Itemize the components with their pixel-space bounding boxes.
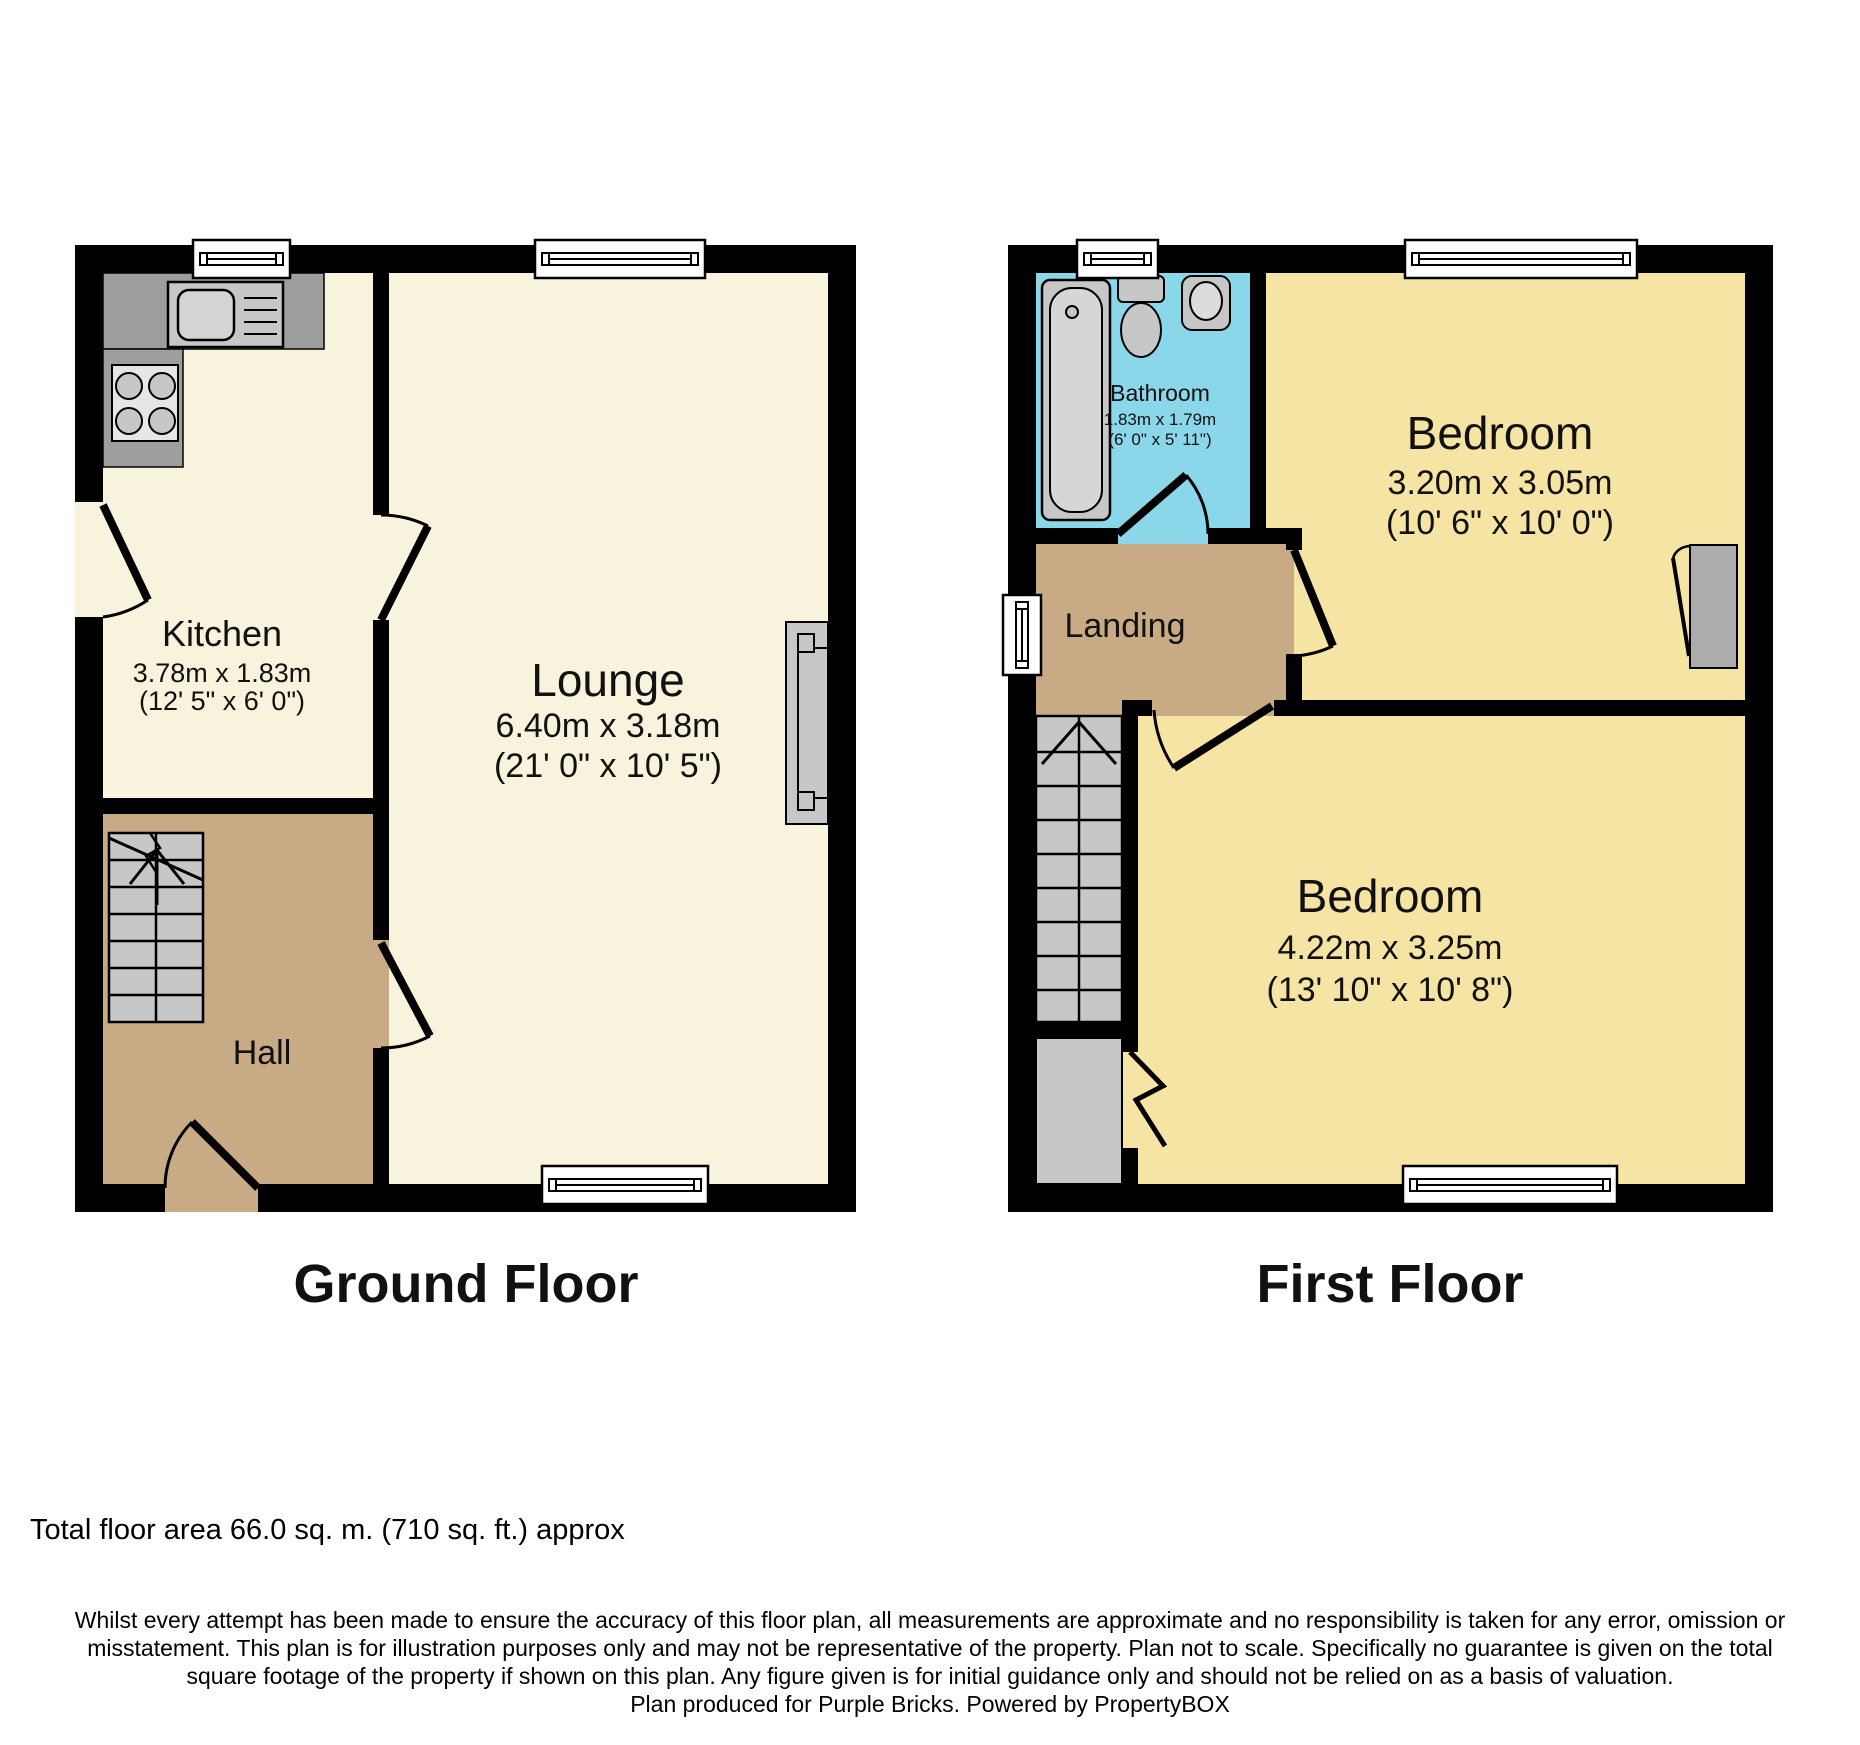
kitchen-sink-icon	[168, 282, 283, 347]
cupboard-over-stairs	[1036, 1038, 1122, 1184]
bedroom-front-dims-metric: 3.20m x 3.05m	[1388, 464, 1613, 502]
floorplan-drawing: Kitchen 3.78m x 1.83m (12' 5" x 6' 0") L…	[0, 0, 1860, 1745]
bathroom-label: Bathroom	[1110, 380, 1210, 406]
lounge-dims-imperial: (21' 0" x 10' 5")	[494, 747, 722, 785]
bedroom-front-dims-imperial: (10' 6" x 10' 0")	[1386, 504, 1614, 542]
lounge-window-back	[542, 1166, 708, 1204]
first-floor-plan: Bathroom 1.83m x 1.79m (6' 0" x 5' 11") …	[1003, 240, 1773, 1314]
front-door-threshold	[165, 1184, 258, 1212]
bedroom-back-label: Bedroom	[1297, 870, 1484, 922]
disclaimer-line: square footage of the property if shown …	[0, 1662, 1860, 1690]
ground-floor-title: Ground Floor	[294, 1254, 639, 1314]
kitchen-dims-imperial: (12' 5" x 6' 0")	[139, 686, 305, 716]
disclaimer-line: Whilst every attempt has been made to en…	[0, 1606, 1860, 1634]
bathtub-icon	[1042, 280, 1110, 520]
floorplan-page: Kitchen 3.78m x 1.83m (12' 5" x 6' 0") L…	[0, 0, 1860, 1745]
disclaimer-line: Plan produced for Purple Bricks. Powered…	[0, 1690, 1860, 1718]
bedroom-front-label: Bedroom	[1407, 407, 1594, 459]
landing-label: Landing	[1064, 607, 1185, 645]
first-floor-title: First Floor	[1257, 1254, 1524, 1314]
disclaimer: Whilst every attempt has been made to en…	[0, 1606, 1860, 1718]
fireplace-icon	[786, 622, 828, 824]
bathroom-dims-imperial: (6' 0" x 5' 11")	[1108, 430, 1211, 449]
hob-icon	[112, 365, 178, 441]
bedroom-front-window	[1405, 240, 1637, 278]
ground-floor-plan: Kitchen 3.78m x 1.83m (12' 5" x 6' 0") L…	[75, 240, 856, 1314]
lounge-dims-metric: 6.40m x 3.18m	[496, 707, 721, 745]
bathroom-dims-metric: 1.83m x 1.79m	[1104, 410, 1216, 429]
staircase-first-icon	[1036, 716, 1122, 1022]
hall-label: Hall	[233, 1034, 292, 1072]
toilet-icon	[1118, 276, 1164, 357]
total-floor-area: Total floor area 66.0 sq. m. (710 sq. ft…	[30, 1514, 625, 1547]
kitchen-dims-metric: 3.78m x 1.83m	[133, 658, 312, 688]
kitchen-window	[193, 240, 290, 278]
bedroom-back-window	[1403, 1166, 1617, 1204]
staircase-ground-icon	[109, 833, 203, 1022]
landing-window	[1003, 595, 1041, 675]
bedroom-back-dims-imperial: (13' 10" x 10' 8")	[1267, 971, 1514, 1009]
basin-icon	[1182, 276, 1230, 330]
lounge-label: Lounge	[531, 654, 685, 706]
bedroom-back-dims-metric: 4.22m x 3.25m	[1278, 929, 1503, 967]
disclaimer-line: misstatement. This plan is for illustrat…	[0, 1634, 1860, 1662]
lounge-window-front	[535, 240, 705, 278]
kitchen-label: Kitchen	[162, 613, 282, 654]
kitchen-door-threshold	[75, 502, 103, 617]
bathroom-window	[1077, 240, 1158, 278]
